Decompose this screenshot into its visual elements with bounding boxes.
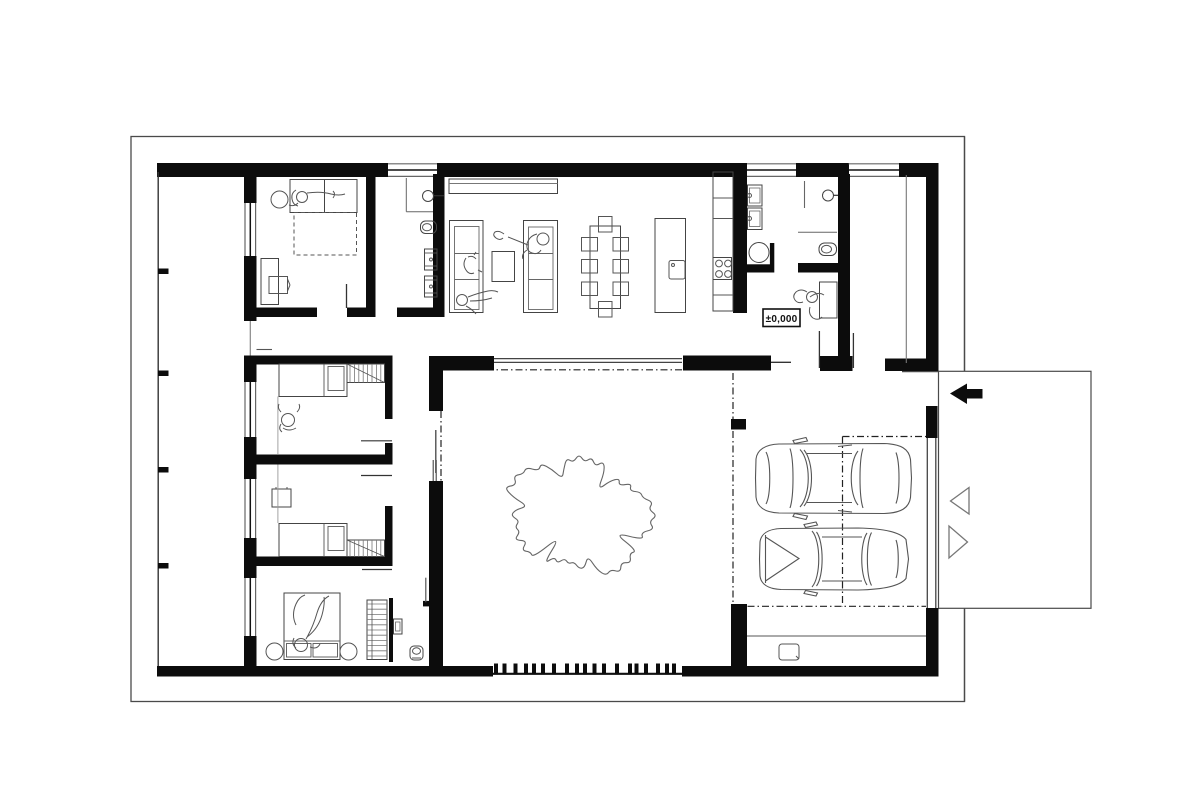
svg-text:±0,000: ±0,000 (766, 314, 798, 325)
